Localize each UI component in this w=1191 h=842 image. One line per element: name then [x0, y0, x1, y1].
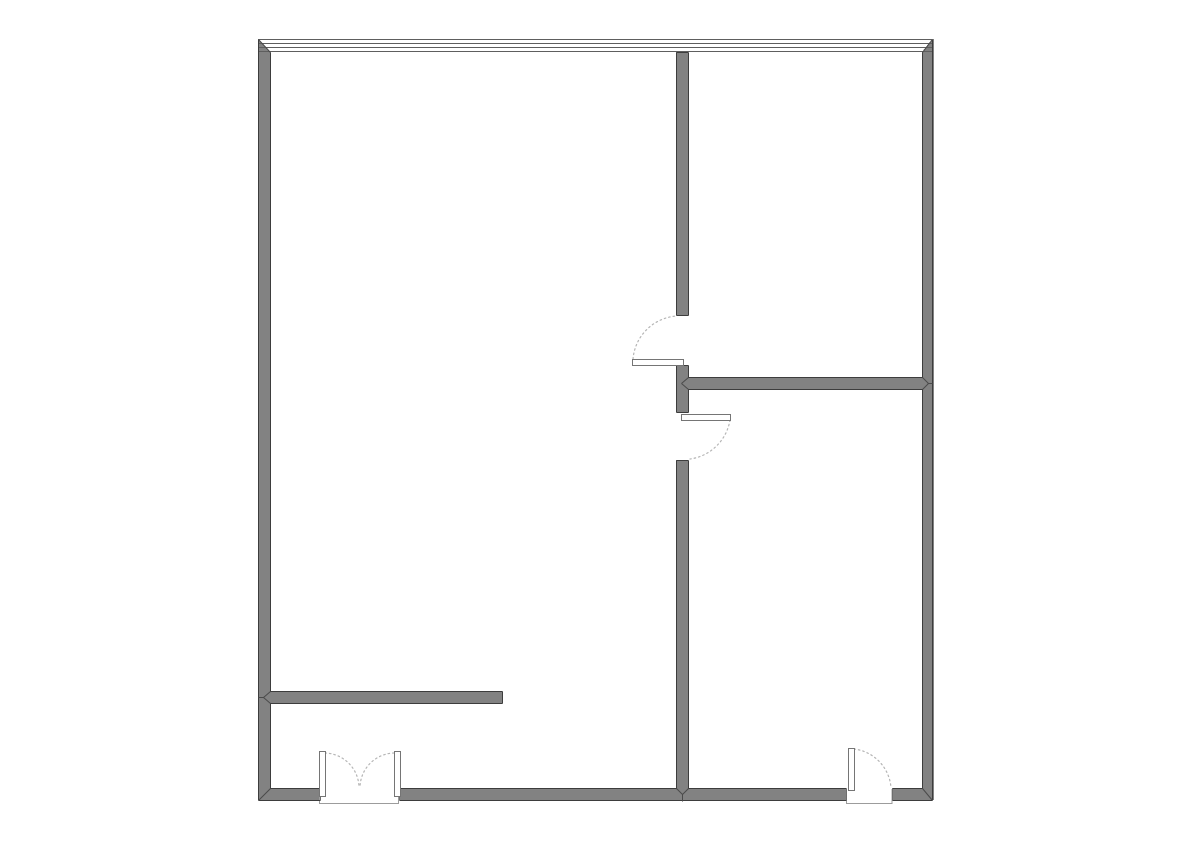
wall-interior-vertical-middle	[676, 365, 688, 412]
window-wall-north-glazing	[258, 39, 932, 52]
threshold-south-east-door	[847, 789, 893, 804]
wall-exterior-south-west	[258, 788, 320, 800]
window-wall-layer	[258, 39, 932, 52]
wall-outlines-layer	[259, 40, 933, 801]
wall-exterior-south-east	[892, 788, 932, 800]
wall-interior-vertical-upper	[676, 52, 688, 315]
door-south-east-leaf	[849, 749, 855, 791]
door-interior-upper	[633, 316, 684, 366]
wall-exterior-west	[258, 39, 270, 800]
wall-interior-stub-west	[270, 691, 502, 703]
floor-plan-canvas	[0, 0, 1191, 842]
door-interior-upper-leaf	[633, 360, 684, 366]
door-entry-double-left-leaf-leaf	[320, 752, 326, 797]
door-entry-double-right-leaf-leaf	[395, 752, 401, 797]
door-entry-double-left-leaf-swing-arc	[325, 753, 359, 787]
door-entry-double-right-leaf-swing-arc	[360, 753, 394, 787]
wall-interior-horizontal-east	[688, 377, 922, 389]
walls-layer	[258, 39, 934, 800]
door-south-east	[849, 749, 892, 791]
wall-interior-vertical-lower	[676, 460, 688, 800]
floor-plan-viewport	[0, 0, 1191, 842]
wall-exterior-south-middle	[399, 788, 846, 800]
door-south-east-swing-arc	[854, 749, 891, 788]
door-interior-lower-leaf	[682, 415, 731, 421]
door-interior-lower	[682, 415, 731, 460]
threshold-entry-double-door	[320, 789, 399, 804]
door-interior-upper-swing-arc	[633, 316, 677, 359]
door-interior-lower-swing-arc	[690, 420, 730, 459]
joints-layer	[259, 40, 933, 802]
